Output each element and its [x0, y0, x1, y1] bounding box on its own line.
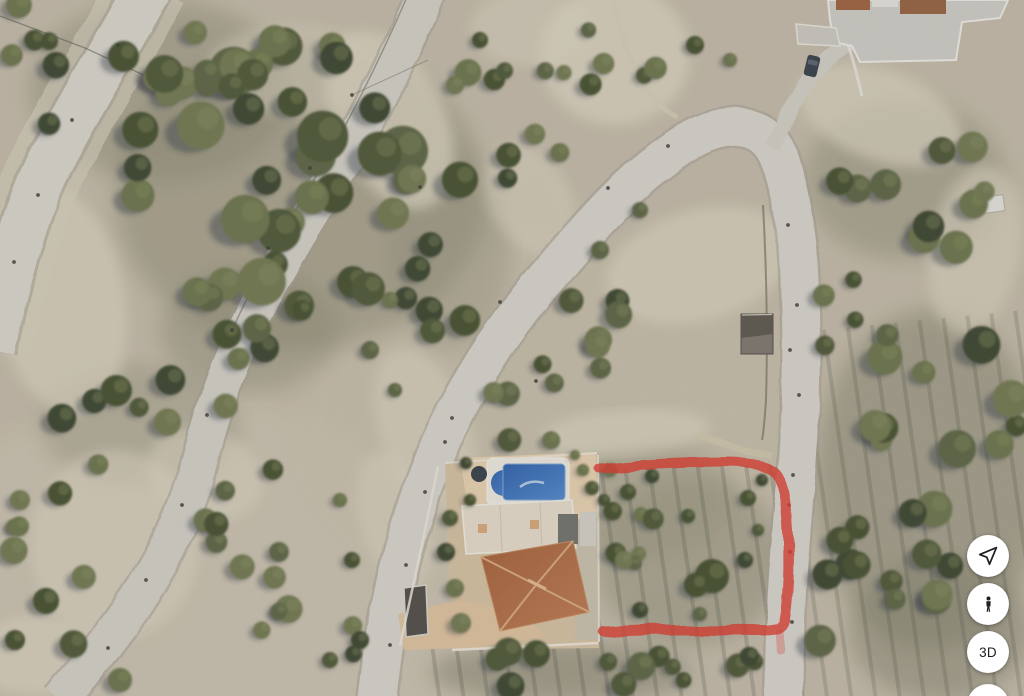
pegman-button[interactable]: [967, 583, 1009, 625]
near-me-arrow-icon: [977, 545, 999, 567]
pegman-icon: [979, 595, 998, 614]
navigate-button[interactable]: [967, 535, 1009, 577]
3d-button[interactable]: 3D: [967, 631, 1009, 673]
grain-light: [0, 0, 1024, 696]
3d-button-label: 3D: [979, 645, 997, 660]
satellite-map[interactable]: [0, 0, 1024, 696]
map-canvas: 3D: [0, 0, 1024, 696]
